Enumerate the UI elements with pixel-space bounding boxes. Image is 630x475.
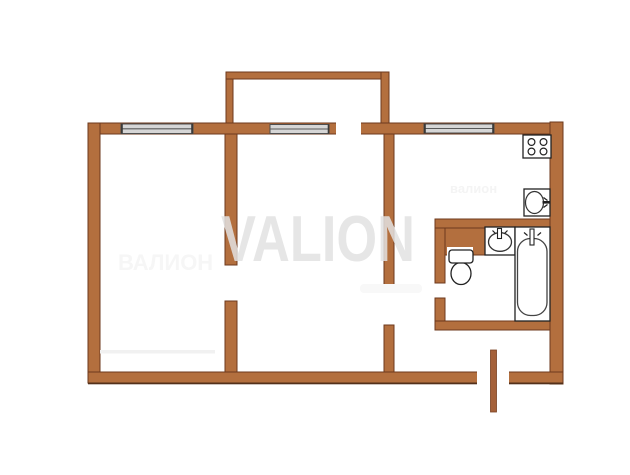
svg-text:валион: валион <box>450 181 497 196</box>
svg-text:ВАЛИОН: ВАЛИОН <box>118 250 213 275</box>
svg-text:VALION: VALION <box>221 202 415 275</box>
